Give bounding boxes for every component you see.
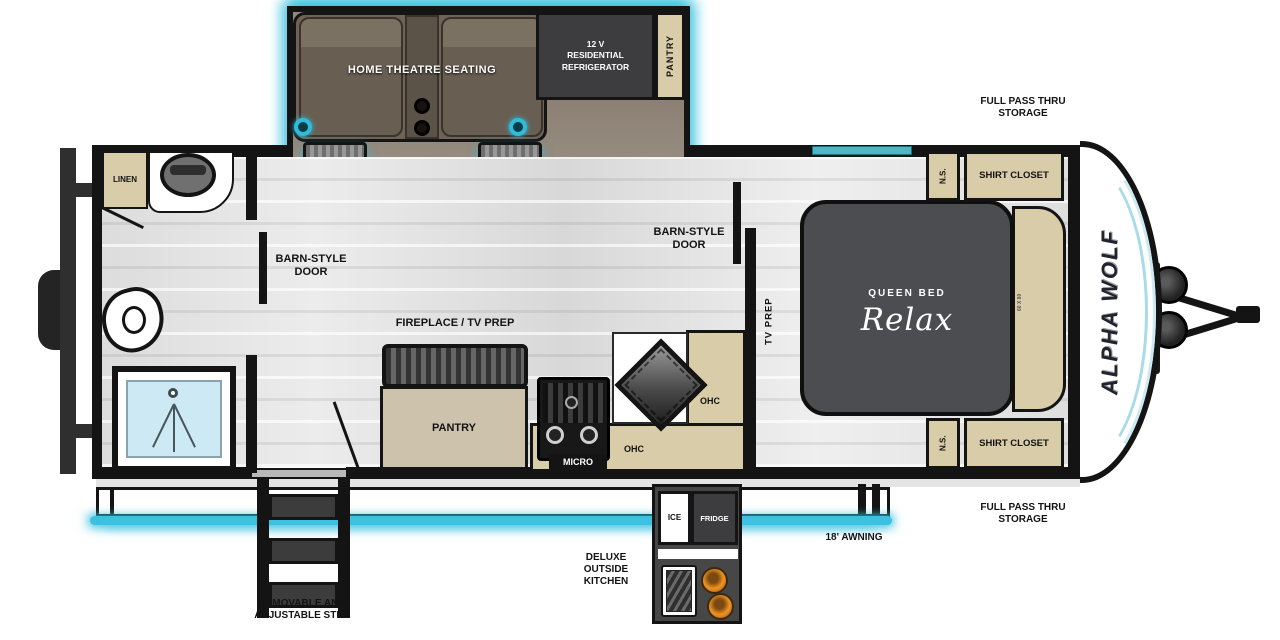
bath-faucet-icon (170, 165, 206, 175)
under-shadow (96, 479, 1080, 487)
outside-fridge-label: FRIDGE (700, 514, 728, 523)
outside-fridge-box: FRIDGE (691, 491, 738, 545)
outside-kitchen: ICE FRIDGE (652, 484, 742, 624)
slide-pantry-label: PANTRY (655, 12, 685, 100)
bed-size-label: 60 X 80 (1014, 280, 1026, 324)
toilet-bowl-icon (122, 306, 146, 334)
step-rail (338, 478, 350, 618)
wall-rear (92, 145, 102, 479)
outside-ice-box: ICE (658, 491, 691, 545)
fireplace-tv-cabinet (382, 344, 528, 388)
cupholder-icon (414, 98, 430, 114)
ohc-label: OHC (688, 396, 732, 407)
step-rail (257, 478, 269, 618)
outside-kitchen-label: DELUXE OUTSIDE KITCHEN (566, 552, 646, 588)
nightstand-top-label: N.S. (926, 151, 960, 201)
ohc-label: OHC (612, 444, 656, 455)
shirt-closet-bottom: SHIRT CLOSET (964, 418, 1064, 469)
residential-refrigerator: 12 V RESIDENTIAL REFRIGERATOR (536, 12, 655, 100)
entry-step (257, 478, 350, 618)
ice-label: ICE (668, 513, 681, 523)
shirt-closet-top: SHIRT CLOSET (964, 151, 1064, 201)
shirt-closet-top-label: SHIRT CLOSET (979, 170, 1049, 181)
burner-icon (565, 396, 578, 409)
hitch-coupler (1236, 306, 1260, 323)
bedroom-window (812, 146, 912, 155)
queen-bed: QUEEN BED Relax (800, 200, 1014, 416)
bath-wall-lower (246, 355, 257, 473)
outside-kitchen-shelf (658, 549, 738, 559)
shower (112, 366, 236, 472)
micro-badge: MICRO (549, 454, 607, 470)
awning-line (90, 516, 892, 525)
burner-icon (546, 426, 564, 444)
shower-head-icon (168, 388, 178, 398)
accent-ring-icon (509, 118, 527, 136)
shirt-closet-bottom-label: SHIRT CLOSET (979, 438, 1049, 449)
bed-brand-label: Relax (804, 302, 1010, 339)
linen-label: LINEN (113, 175, 137, 185)
refrigerator-label: 12 V RESIDENTIAL REFRIGERATOR (562, 39, 629, 72)
wall-front-bulkhead (1068, 145, 1080, 479)
theatre-seating-label: HOME THEATRE SEATING (296, 64, 548, 77)
pass-thru-storage-label-bottom: FULL PASS THRU STORAGE (966, 502, 1080, 526)
awning-rail-endcap (858, 484, 866, 519)
rear-bumper (60, 148, 76, 474)
tv-prep-label: TV PREP (758, 288, 780, 354)
brand-wordmark: ALPHA WOLF (1092, 181, 1128, 443)
linen-closet: LINEN (102, 151, 148, 209)
burner-orange-icon (701, 567, 728, 594)
nightstand-bottom-label: N.S. (926, 418, 960, 469)
griddle-icon (661, 565, 697, 617)
awning-rail (96, 487, 890, 517)
awning-rail-endcap (872, 484, 880, 519)
barn-door-label-rear: BARN-STYLE DOOR (252, 253, 370, 279)
cupholder-icon (414, 120, 430, 136)
bath-wall-upper (246, 150, 257, 220)
fireplace-label: FIREPLACE / TV PREP (376, 317, 534, 330)
accent-ring-icon (294, 118, 312, 136)
step-tread (269, 494, 338, 520)
burner-icon (580, 426, 598, 444)
burner-orange-icon (707, 593, 734, 620)
floorplan-canvas: 18' AWNING HOME THEATRE SEATING 12 V RES… (0, 0, 1280, 640)
shower-spray-line (173, 404, 175, 452)
pass-thru-storage-label-top: FULL PASS THRU STORAGE (966, 96, 1080, 120)
pantry-label: PANTRY (400, 422, 508, 435)
micro-label: MICRO (563, 457, 593, 468)
awning-label: 18' AWNING (806, 532, 902, 544)
front-cap: ALPHA WOLF (1080, 141, 1162, 483)
stove-icon (537, 377, 610, 461)
bed-type-label: QUEEN BED (804, 288, 1010, 300)
step-label: REMOVABLE AND ADJUSTABLE STEP (234, 598, 370, 622)
bedroom-wall (745, 228, 756, 473)
barn-door-label-front: BARN-STYLE DOOR (630, 226, 748, 252)
step-tread (269, 538, 338, 564)
griddle-surface (666, 570, 692, 612)
awning-rail-endcap (110, 487, 114, 517)
bath-sink-icon (160, 153, 216, 197)
